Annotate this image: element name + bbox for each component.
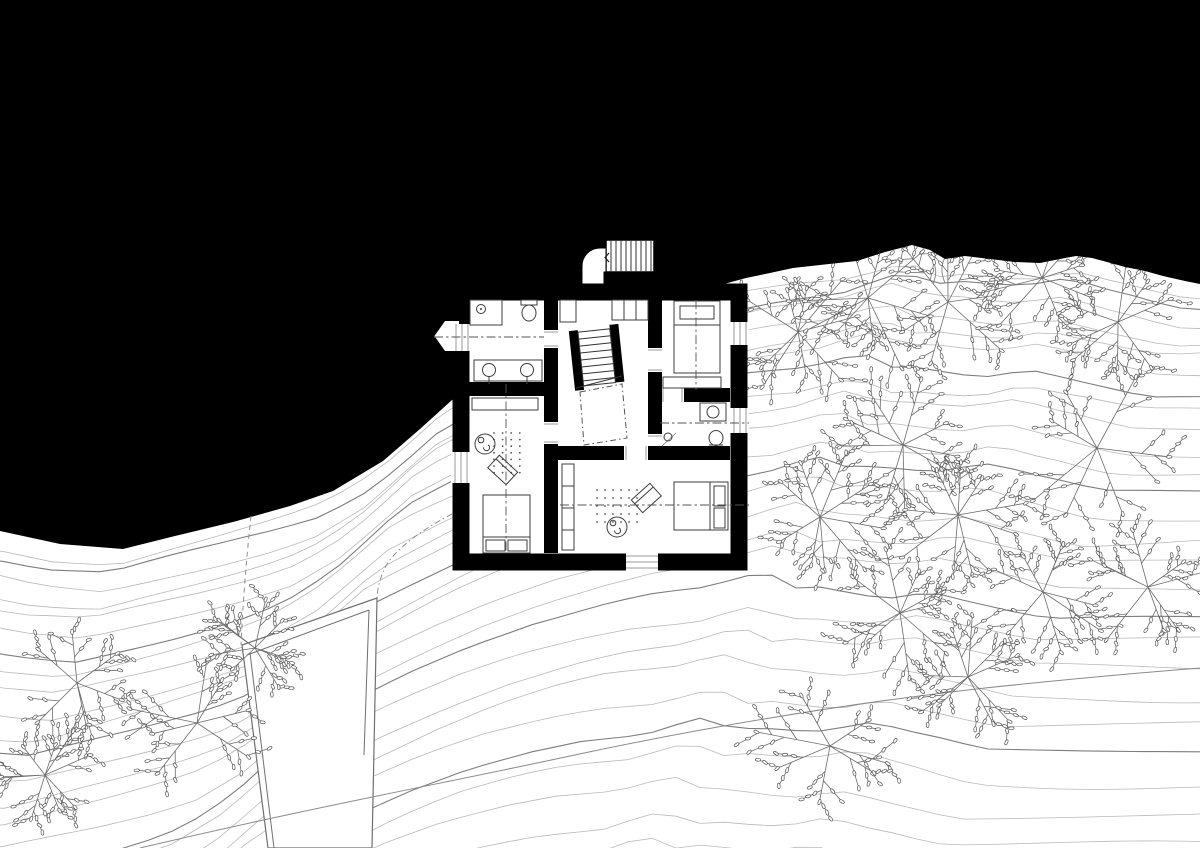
- entry-stair-icon: [606, 240, 654, 272]
- contour-line: [0, 532, 1200, 826]
- tree-icon: [758, 441, 907, 591]
- window-icon-east-1: [730, 322, 749, 345]
- window-icon-south: [626, 552, 658, 571]
- floor-plan: [432, 240, 749, 571]
- contour-line: [0, 777, 1200, 848]
- tree-icon: [734, 677, 901, 822]
- window-icon-east-2: [730, 408, 749, 433]
- contour-line: [0, 838, 1200, 848]
- contour-line: [0, 814, 1200, 848]
- contour-line: [0, 608, 1200, 848]
- site-plan: [0, 0, 1200, 848]
- contour-line: [0, 692, 1200, 848]
- site-plan-figure: [0, 0, 1200, 848]
- contour-line: [0, 575, 1200, 848]
- contour-line: [0, 718, 1200, 848]
- window-icon-west: [451, 452, 470, 483]
- stair-icon: [569, 324, 625, 391]
- contour-line: [0, 546, 1200, 848]
- tree-icon: [1068, 513, 1200, 655]
- tree-icon: [904, 604, 1035, 745]
- contour-line: [0, 655, 1200, 848]
